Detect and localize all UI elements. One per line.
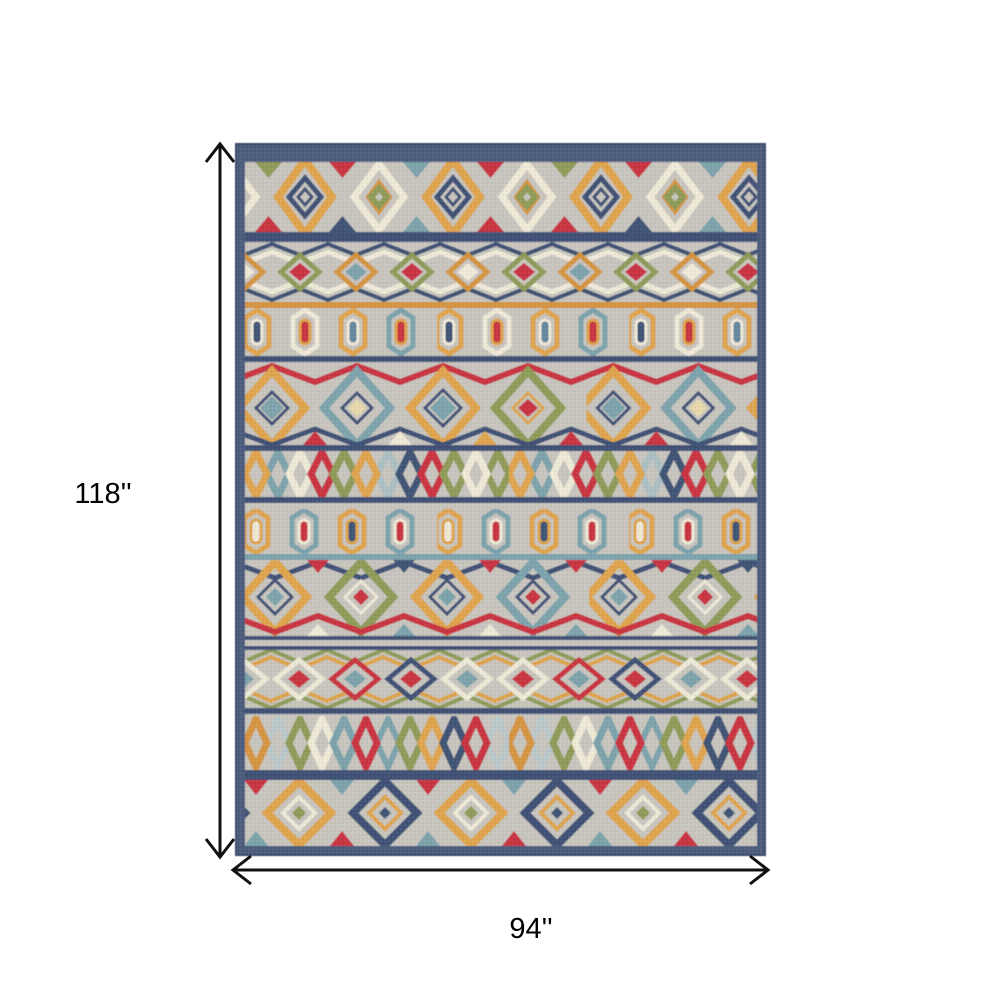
svg-text:94'': 94'': [509, 913, 552, 945]
svg-text:118'': 118'': [74, 478, 131, 510]
